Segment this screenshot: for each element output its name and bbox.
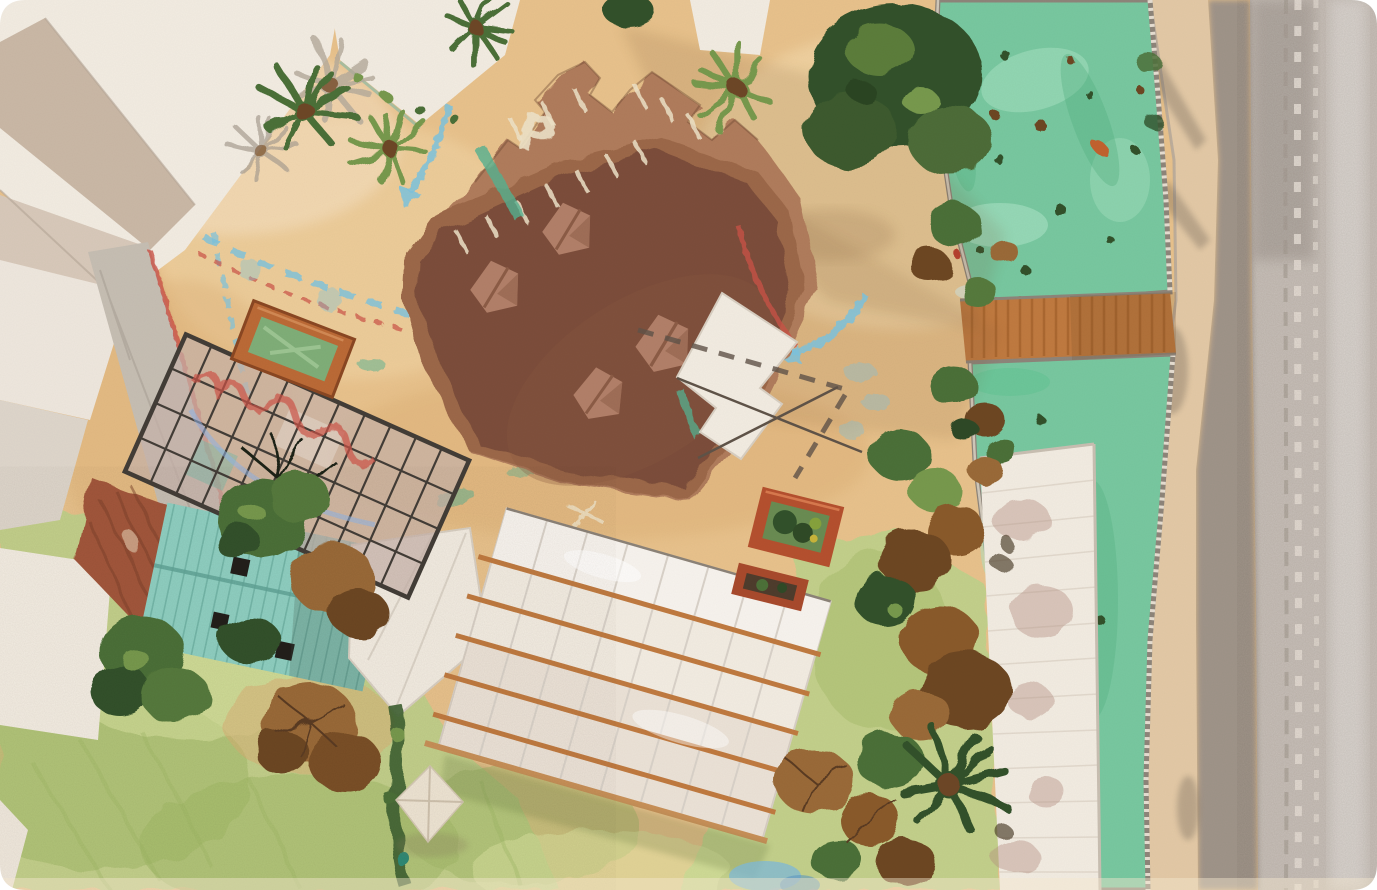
aerial-photo-stage: P <box>0 0 1377 890</box>
bottom-pale-edge <box>0 878 1377 890</box>
model-aerial-scene: P <box>0 0 1377 890</box>
gravel-texture <box>1250 0 1377 890</box>
